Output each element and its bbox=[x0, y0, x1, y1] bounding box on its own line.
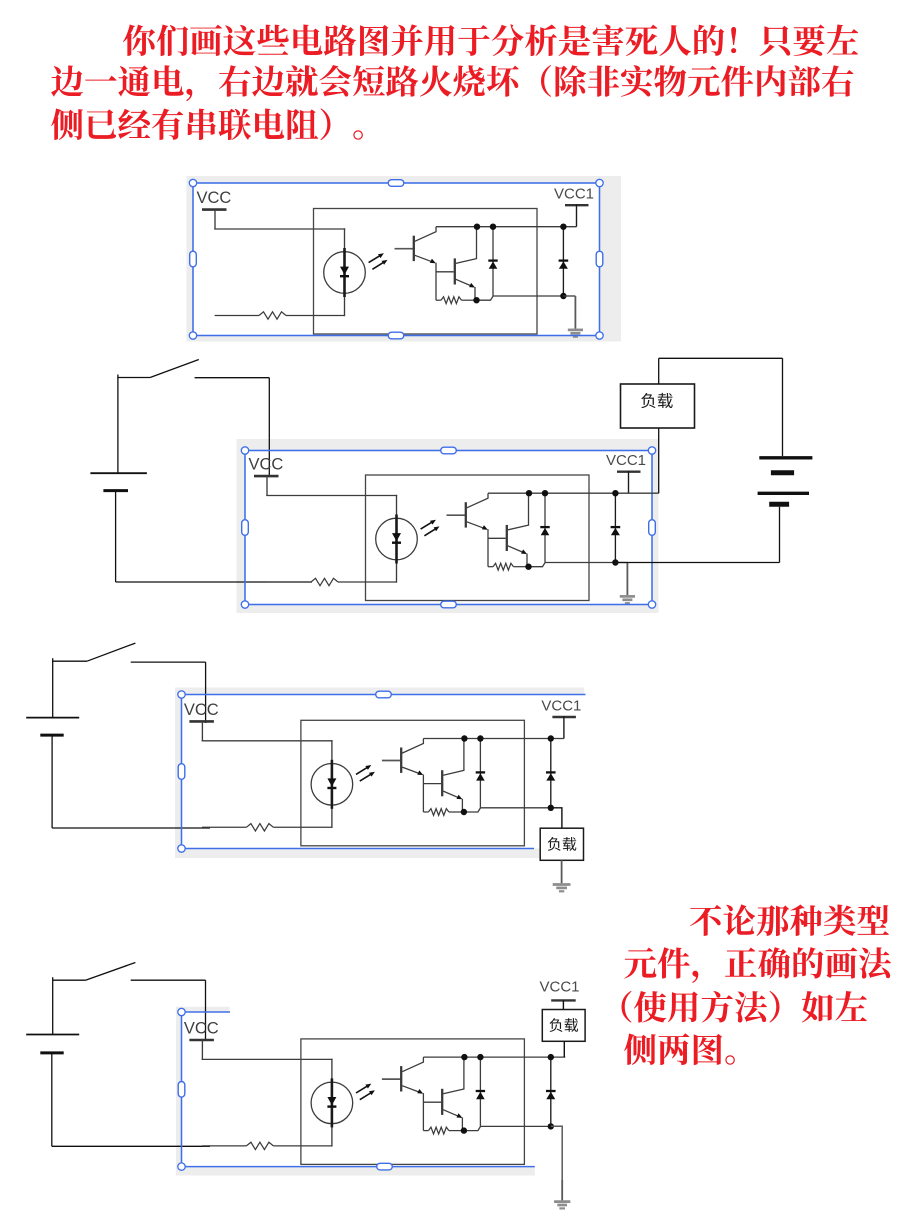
svg-text:VCC1: VCC1 bbox=[541, 697, 581, 714]
svg-text:VCC: VCC bbox=[197, 189, 232, 207]
svg-text:VCC: VCC bbox=[184, 701, 219, 719]
svg-text:VCC1: VCC1 bbox=[554, 186, 594, 203]
svg-text:VCC1: VCC1 bbox=[540, 979, 580, 996]
svg-text:VCC: VCC bbox=[249, 456, 284, 474]
svg-text:VCC1: VCC1 bbox=[606, 452, 646, 469]
svg-text:VCC: VCC bbox=[184, 1019, 219, 1037]
